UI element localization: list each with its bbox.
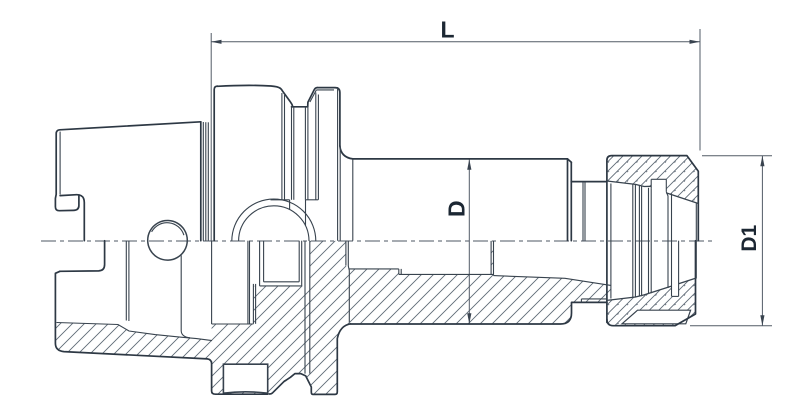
svg-text:D1: D1 (738, 224, 761, 251)
svg-text:L: L (441, 17, 455, 43)
svg-text:D: D (444, 200, 470, 217)
